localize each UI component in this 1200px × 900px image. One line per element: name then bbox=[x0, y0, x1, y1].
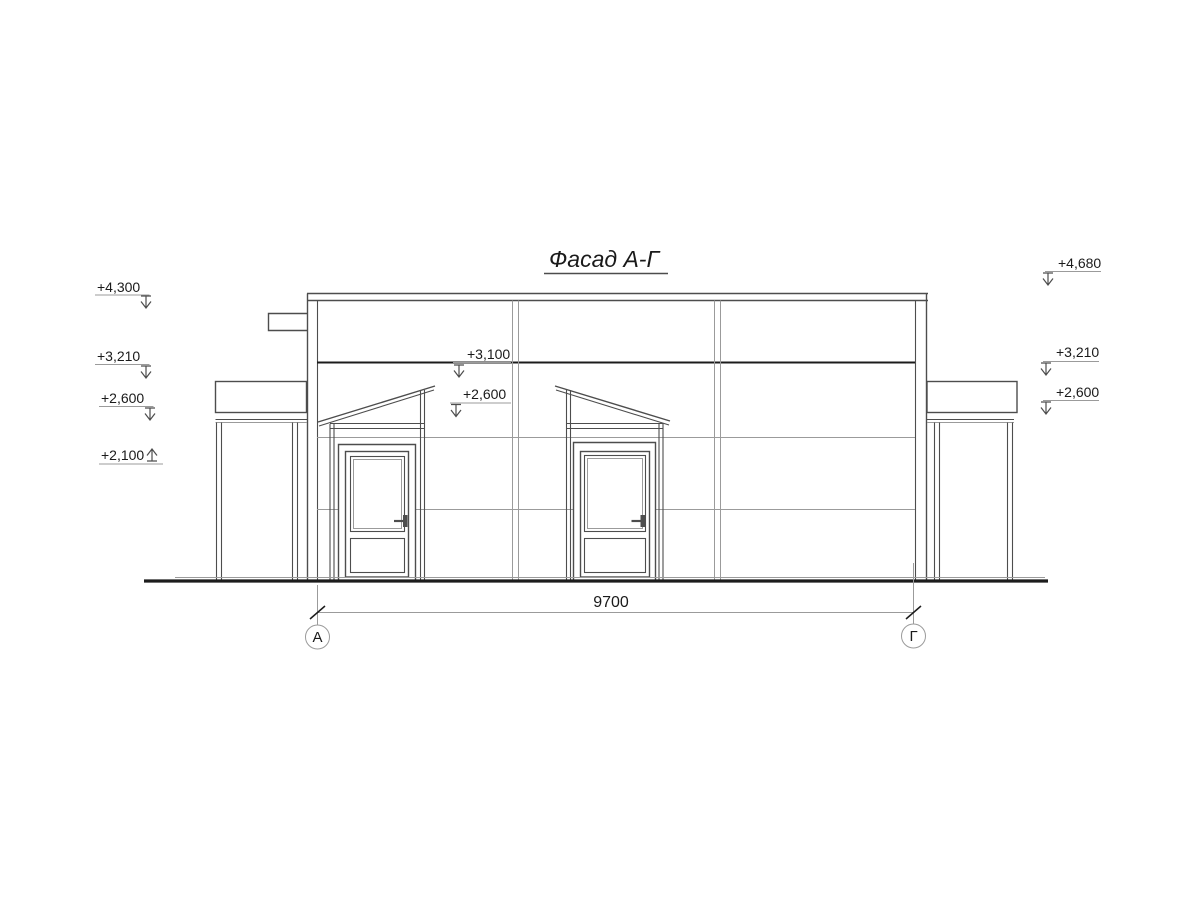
elevation-mark-right-4680: +4,680 bbox=[1043, 255, 1101, 285]
elevation-label: +2,600 bbox=[1056, 384, 1099, 400]
axis-a-label: А bbox=[312, 629, 322, 646]
drawing-sheet: Фасад А-Г bbox=[0, 0, 1200, 900]
facade-elevation-drawing: Фасад А-Г bbox=[0, 0, 1200, 900]
elevation-arrow-down-icon bbox=[1041, 402, 1051, 414]
elevation-label: +4,300 bbox=[97, 279, 140, 295]
elevation-mark-right-2600: +2,600 bbox=[1041, 384, 1099, 414]
elevation-mark-left-2100: +2,100 bbox=[99, 447, 163, 464]
axis-g-label: Г bbox=[909, 628, 917, 645]
elevation-arrow-down-icon bbox=[141, 296, 151, 308]
elevation-label: +3,210 bbox=[1056, 344, 1099, 360]
left-canopy-structure bbox=[216, 382, 308, 581]
elevation-label: +2,600 bbox=[101, 390, 144, 406]
elevation-label: +3,100 bbox=[467, 346, 510, 362]
elevation-arrow-down-icon bbox=[451, 405, 461, 417]
elevation-arrow-down-icon bbox=[454, 365, 464, 377]
elevation-arrow-down-icon bbox=[141, 366, 151, 378]
axis-marker-g: Г bbox=[902, 624, 926, 648]
door-2 bbox=[574, 443, 656, 582]
elevation-arrow-up-icon bbox=[147, 449, 157, 461]
elevation-arrow-down-icon bbox=[145, 408, 155, 420]
elevation-arrow-down-icon bbox=[1041, 363, 1051, 375]
elevation-label: +3,210 bbox=[97, 348, 140, 364]
right-canopy-structure bbox=[927, 382, 1017, 581]
elevation-label: +2,600 bbox=[463, 386, 506, 402]
elevation-mark-left-3210: +3,210 bbox=[95, 348, 151, 378]
elevation-label: +2,100 bbox=[101, 447, 144, 463]
elevation-arrow-down-icon bbox=[1043, 273, 1053, 285]
elevation-mark-right-3210: +3,210 bbox=[1041, 344, 1099, 375]
drawing-title: Фасад А-Г bbox=[544, 246, 668, 274]
elevation-mark-middle-2600: +2,600 bbox=[450, 386, 511, 417]
title-text: Фасад А-Г bbox=[549, 246, 660, 272]
elevation-label: +4,680 bbox=[1058, 255, 1101, 271]
elevation-mark-left-4300: +4,300 bbox=[95, 279, 151, 308]
elevation-mark-left-2600: +2,600 bbox=[99, 390, 155, 420]
dimension-value: 9700 bbox=[593, 594, 629, 611]
axis-marker-a: А bbox=[306, 625, 330, 649]
door-1 bbox=[339, 445, 416, 582]
roof-pipe bbox=[269, 314, 308, 331]
